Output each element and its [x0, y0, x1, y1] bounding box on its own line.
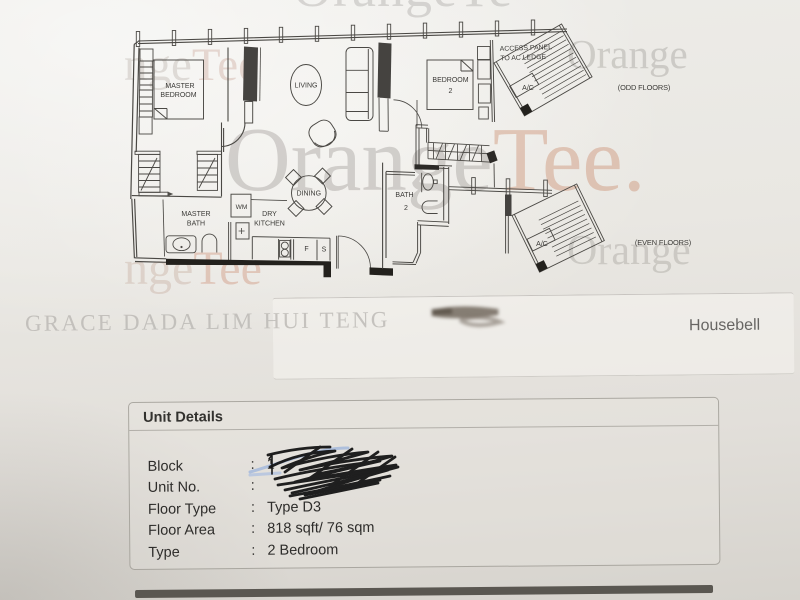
svg-text:A/C: A/C	[522, 85, 534, 92]
svg-text:DRY: DRY	[262, 211, 277, 218]
svg-text:A/C: A/C	[536, 241, 548, 248]
svg-text:BATH: BATH	[187, 221, 205, 228]
svg-text:BEDROOM: BEDROOM	[160, 92, 196, 99]
svg-text:S: S	[322, 247, 327, 254]
svg-text:2: 2	[449, 88, 453, 95]
svg-text:WM: WM	[236, 204, 248, 211]
svg-text:MASTER: MASTER	[165, 83, 194, 90]
svg-text:2: 2	[404, 205, 408, 212]
svg-text:MASTER: MASTER	[181, 211, 210, 218]
svg-text:(ODD FLOORS): (ODD FLOORS)	[618, 83, 671, 92]
svg-text:DINING: DINING	[297, 191, 322, 198]
svg-text:LIVING: LIVING	[295, 83, 318, 90]
svg-text:(EVEN FLOORS): (EVEN FLOORS)	[635, 238, 691, 247]
svg-text:BATH: BATH	[395, 192, 413, 199]
svg-text:KITCHEN: KITCHEN	[254, 221, 285, 228]
svg-text:F: F	[304, 246, 308, 253]
svg-text:BEDROOM: BEDROOM	[432, 77, 468, 84]
